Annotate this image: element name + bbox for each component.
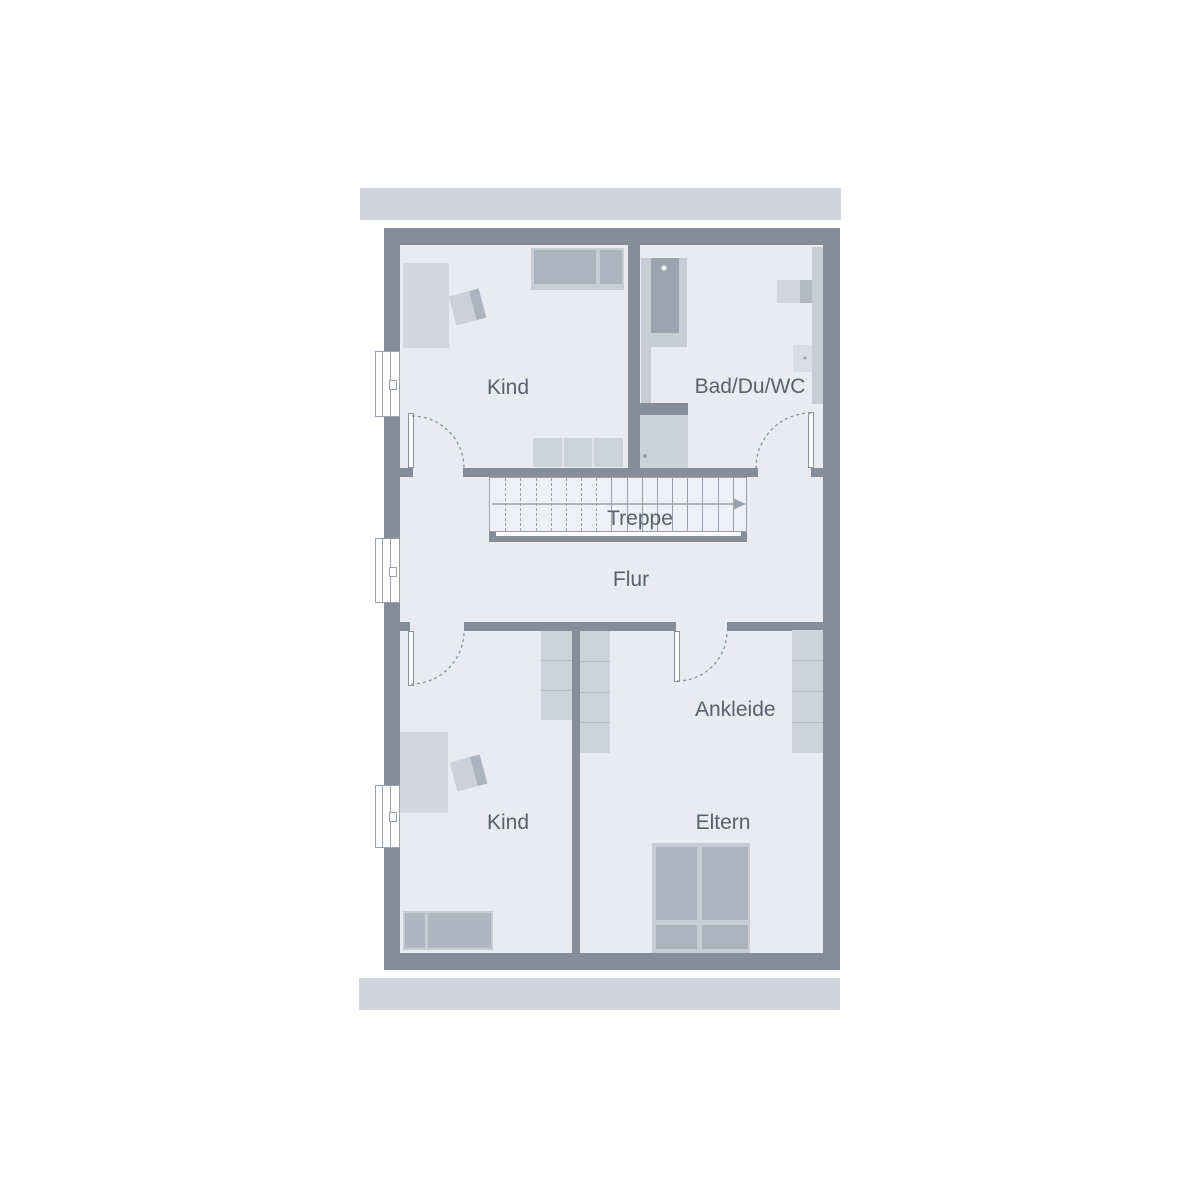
room-label-bad: Bad/Du/WC	[690, 376, 810, 398]
floor-plan-canvas: Kind Bad/Du/WC Treppe Flur Ankleide Kind…	[0, 0, 1200, 1200]
room-label-eltern: Eltern	[683, 812, 763, 834]
door-arc-ankleide	[677, 631, 727, 681]
room-label-treppe: Treppe	[600, 508, 680, 530]
door-arc-bad	[756, 413, 811, 468]
room-label-ankleide: Ankleide	[695, 699, 775, 721]
room-label-kind-bottom: Kind	[468, 812, 548, 834]
wc-dot	[804, 357, 807, 360]
bathtub-faucet-dot	[662, 266, 667, 271]
door-arc-kind-bottom	[411, 631, 464, 684]
room-label-flur: Flur	[591, 569, 671, 591]
stair-direction-arrow	[733, 498, 746, 510]
room-label-kind-top: Kind	[468, 377, 548, 399]
door-arc-kind-top	[412, 416, 464, 468]
plan-symbol-overlay	[0, 0, 1200, 1200]
shower-drain-dot	[643, 454, 647, 458]
